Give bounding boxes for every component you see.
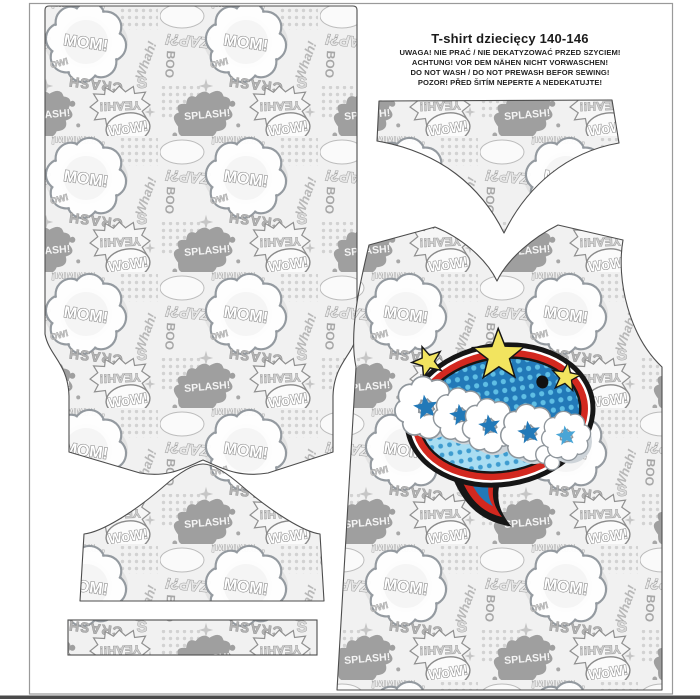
- binding-strip-piece: [68, 620, 317, 655]
- panel-graphic: ¡MMMM... ZAP?! MOM! BOO OW! Whah! CRASH: [0, 0, 700, 700]
- header-block: T-shirt dziecięcy 140-146 UWAGA! NIE PRA…: [352, 31, 668, 88]
- warning-line-en: DO NOT WASH / DO NOT PREWASH BEFOR SEWIN…: [352, 68, 668, 78]
- panel-title: T-shirt dziecięcy 140-146: [352, 31, 668, 46]
- warning-line-pl: UWAGA! NIE PRAĆ / NIE DEKATYZOWAĆ PRZED …: [352, 48, 668, 58]
- back-panel-piece: [45, 6, 357, 474]
- warning-line-de: ACHTUNG! VOR DEM NÄHEN NICHT VORWASCHEN!: [352, 58, 668, 68]
- warning-line-cz: POZOR! PŘED ŠITÍM NEPERTE A NEDEKATUJTE!: [352, 78, 668, 88]
- sleeve-piece: [80, 464, 324, 601]
- neckband-piece: [377, 100, 619, 233]
- sheet-bottom-edge: [0, 696, 700, 700]
- tshirt-panel-sheet: ¡MMMM... ZAP?! MOM! BOO OW! Whah! CRASH: [0, 0, 700, 700]
